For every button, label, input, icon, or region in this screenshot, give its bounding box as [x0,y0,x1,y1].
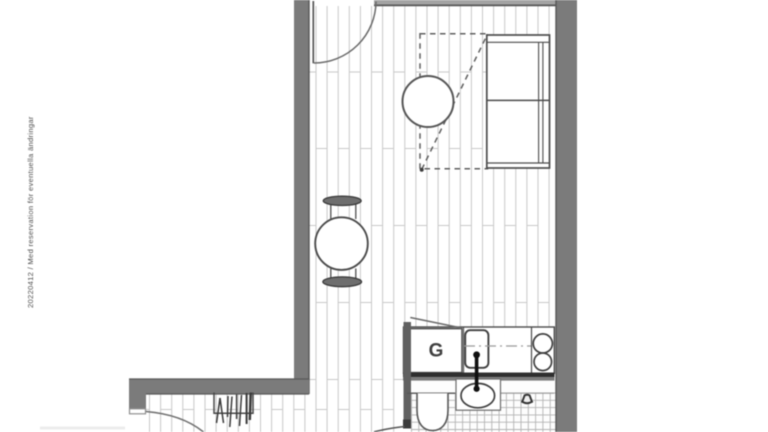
svg-text:20220412 / Med reservation för: 20220412 / Med reservation för eventuell… [26,116,35,308]
svg-text:G: G [429,341,444,362]
